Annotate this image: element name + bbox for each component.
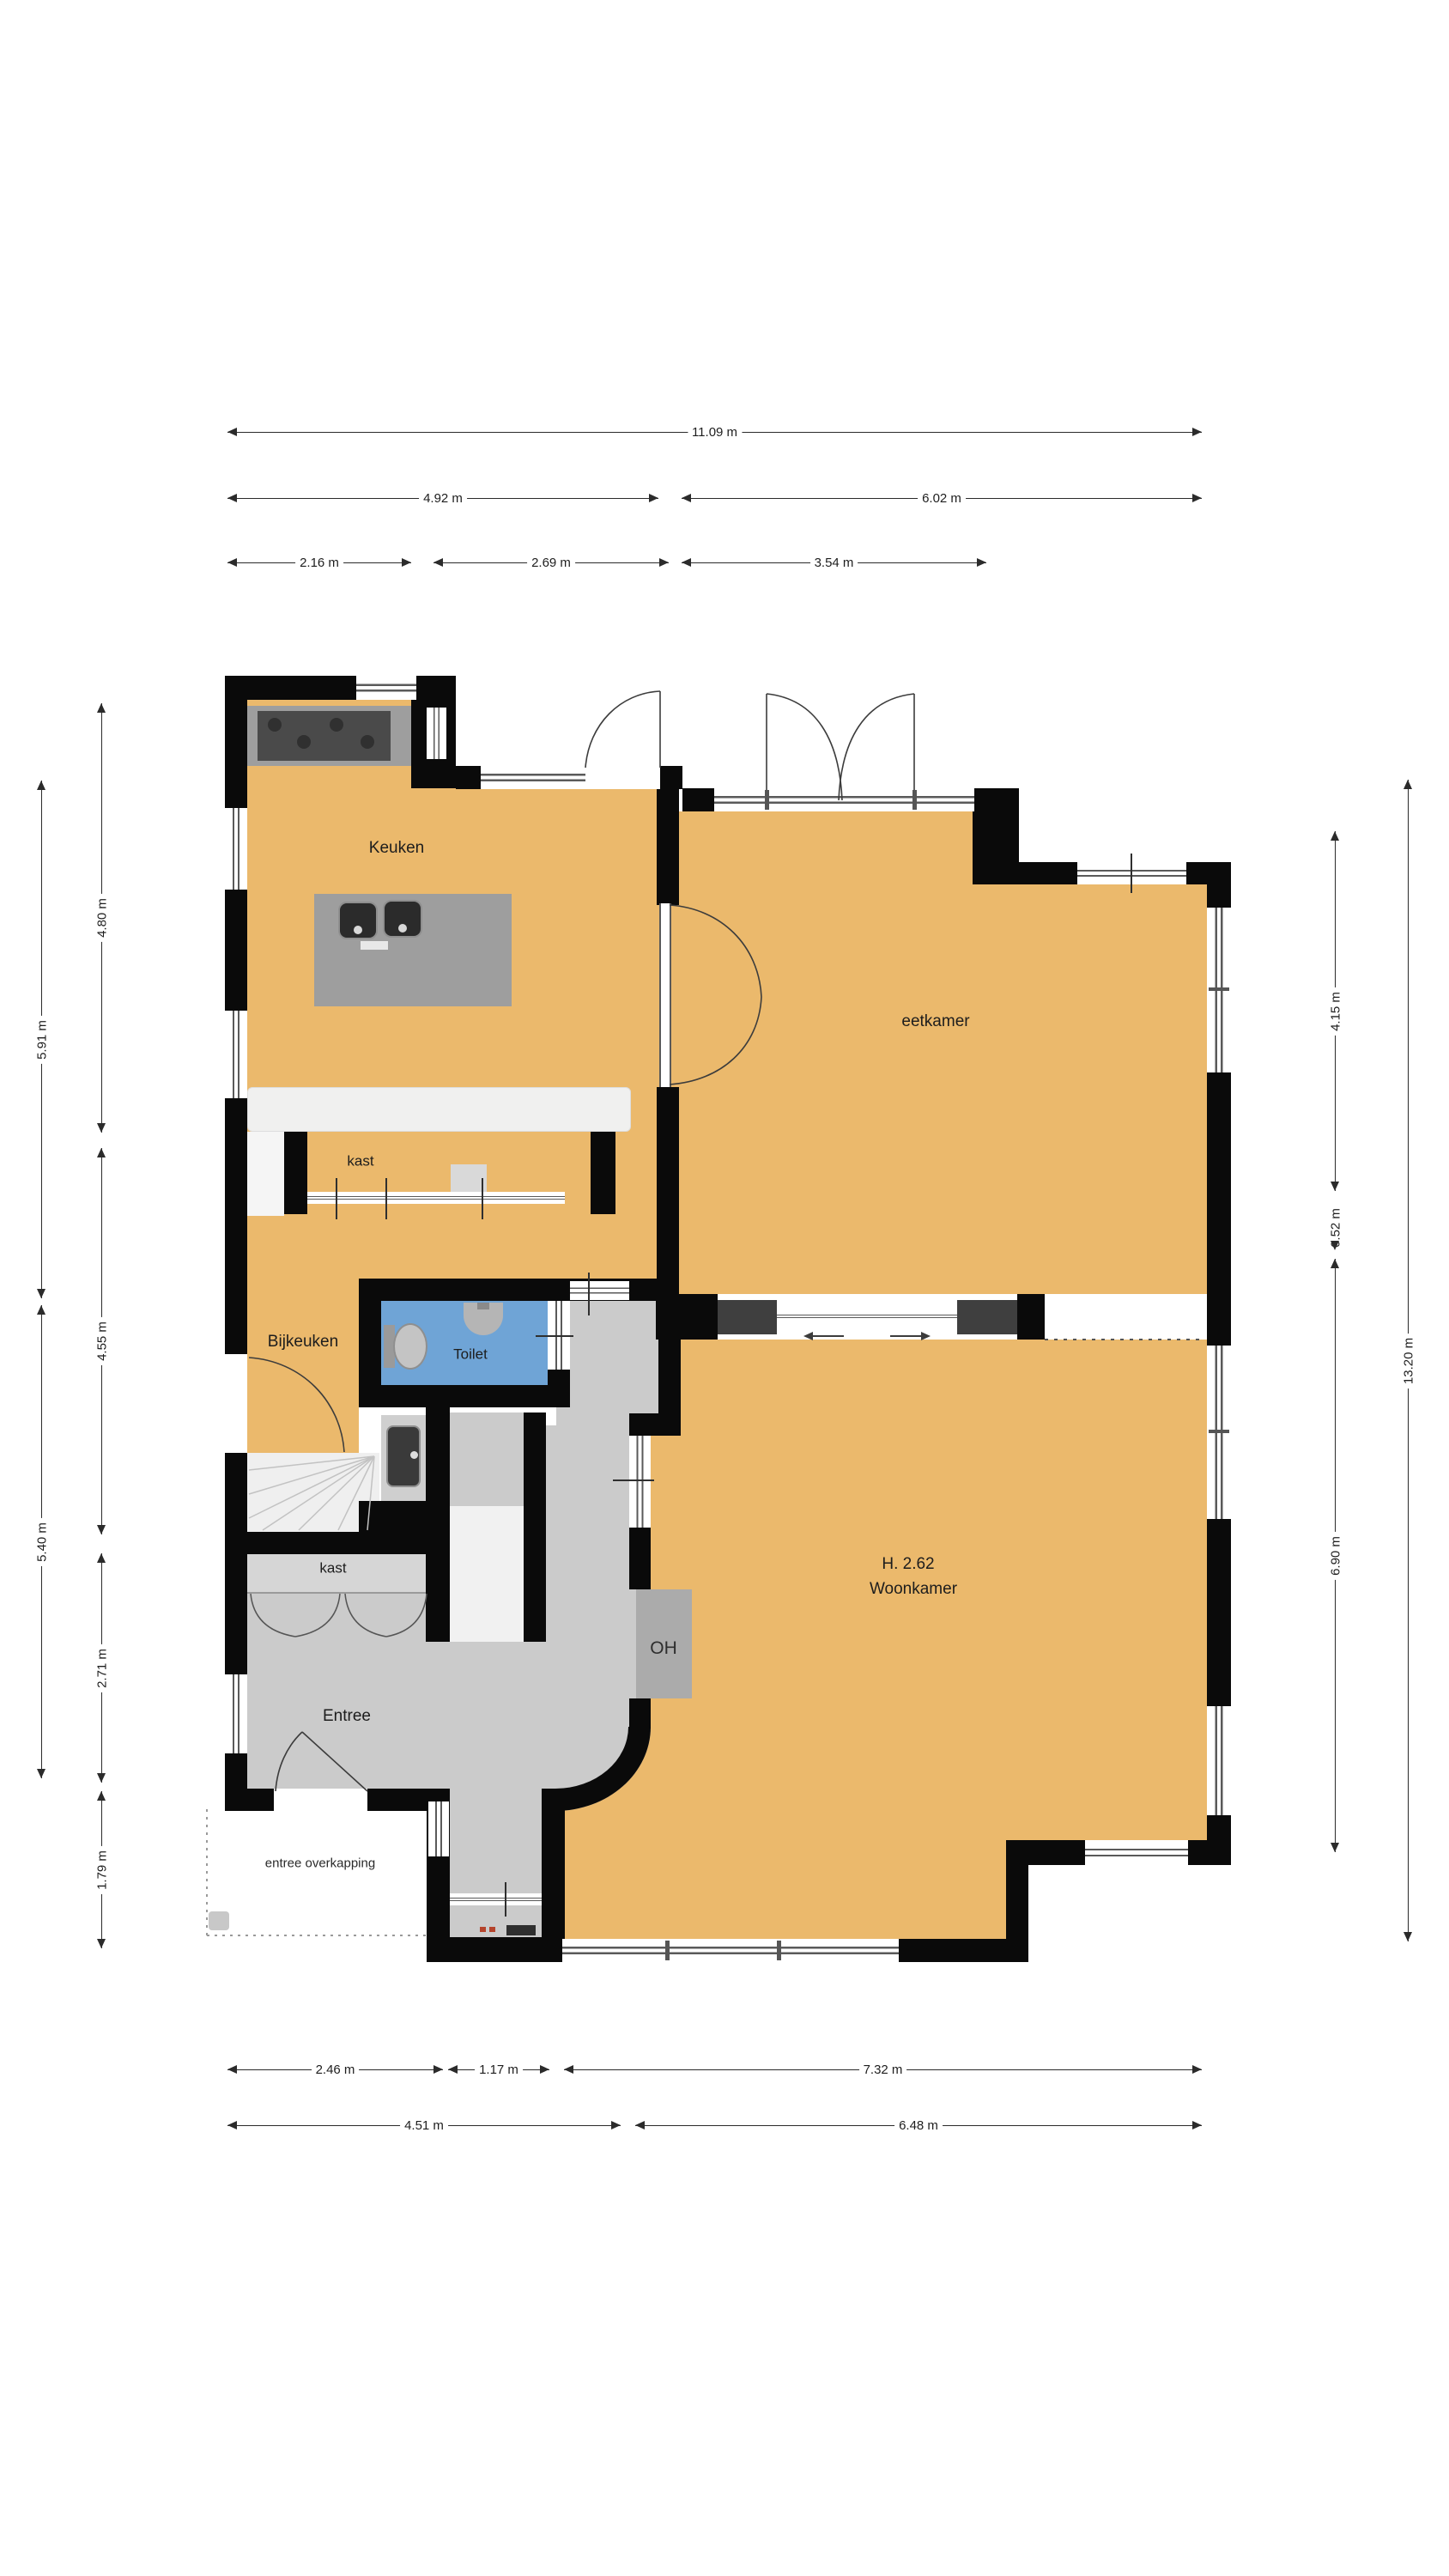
floor-eetkamer-2: [1019, 884, 1207, 1294]
wall: [359, 1385, 570, 1407]
wall: [284, 1132, 307, 1214]
room-label-kast-bottom: kast: [319, 1558, 346, 1577]
window: [1085, 1840, 1188, 1865]
wall: [629, 1698, 651, 1728]
door-opening-front: [274, 1789, 367, 1811]
mat-dot-1: [480, 1927, 486, 1932]
door-glazed-partition: [659, 903, 671, 1087]
utility-faucet: [410, 1451, 418, 1459]
window: [428, 1801, 449, 1856]
floorplan-canvas: Keuken eetkamer kast Bijkeuken Toilet ka…: [0, 0, 1449, 2576]
wall: [656, 1294, 718, 1340]
door-opening: [585, 766, 660, 789]
dim-top-seg1: 2.16 m: [227, 562, 411, 563]
doormat: [506, 1925, 536, 1935]
window: [427, 708, 446, 759]
window: [562, 1939, 899, 1962]
room-label-entree: Entree: [323, 1706, 371, 1727]
room-label-entree-overkapping: entree overkapping: [265, 1856, 375, 1873]
room-label-eetkamer: eetkamer: [901, 1012, 969, 1032]
wall: [524, 1413, 546, 1642]
island-faucet-left: [354, 926, 362, 934]
porch-post: [209, 1911, 229, 1930]
wall: [591, 1132, 615, 1214]
mullion: [1209, 1430, 1229, 1433]
pocket-door-left: [718, 1300, 777, 1334]
window-french-doors: [714, 788, 974, 811]
wall: [657, 788, 679, 905]
dim-total-height: 13.20 m: [1408, 780, 1409, 1941]
room-label-keuken: Keuken: [369, 838, 424, 859]
stairs-straight: [450, 1506, 524, 1642]
mat-dot-2: [489, 1927, 495, 1932]
dim-bottom-seg1: 2.46 m: [227, 2069, 443, 2070]
pocket-door-right: [957, 1300, 1017, 1334]
vestibule: [450, 1789, 542, 1895]
dim-bottom-left-total: 4.51 m: [227, 2125, 621, 2126]
dim-left-seg2: 4.55 m: [101, 1148, 102, 1534]
room-label-bijkeuken: Bijkeuken: [268, 1332, 338, 1352]
door-porch: [450, 1893, 542, 1905]
mullion: [765, 790, 769, 810]
wall: [973, 788, 1019, 884]
sliding-door-rail: [777, 1310, 957, 1322]
toilet-sink-faucet: [477, 1303, 489, 1309]
door-kast-sliding: [307, 1192, 565, 1204]
dim-bottom-seg2: 1.17 m: [448, 2069, 549, 2070]
dim-left-upper: 5.91 m: [41, 781, 42, 1298]
room-label-toilet: Toilet: [453, 1345, 488, 1363]
mullion: [912, 790, 917, 810]
kitchen-cabinets: [247, 1087, 631, 1132]
floor-eetkamer: [679, 811, 1019, 1294]
window: [481, 766, 585, 789]
dim-top-seg3: 3.54 m: [682, 562, 986, 563]
window: [1207, 1706, 1231, 1815]
burner-3: [330, 718, 343, 732]
mullion: [665, 1941, 670, 1960]
island-faucet-right: [398, 924, 407, 933]
island-handle: [361, 941, 388, 950]
window: [225, 1674, 247, 1753]
window: [1077, 862, 1186, 884]
dim-left-lower: 5.40 m: [41, 1305, 42, 1778]
dim-right-wall: 0.52 m: [1335, 1205, 1336, 1250]
hall-upper: [556, 1301, 658, 1425]
dim-bottom-seg3: 7.32 m: [564, 2069, 1202, 2070]
dim-right-woonkamer: 6.90 m: [1335, 1259, 1336, 1852]
window: [225, 808, 247, 890]
dim-left-seg3: 2.71 m: [101, 1553, 102, 1783]
wall: [629, 1413, 681, 1436]
room-label-ceiling-height: H. 2.62: [882, 1554, 934, 1575]
wall: [629, 1528, 651, 1589]
dim-right-eetkamer: 4.15 m: [1335, 831, 1336, 1191]
cabinet-block: [247, 1132, 284, 1216]
mullion: [777, 1941, 781, 1960]
wall: [542, 1789, 565, 1960]
mullion: [1209, 987, 1229, 991]
wall: [657, 1087, 679, 1299]
window: [356, 676, 416, 700]
wall: [1017, 1294, 1045, 1340]
door-opening: [225, 1354, 247, 1453]
burner-2: [297, 735, 311, 749]
window-partition: [570, 1281, 629, 1300]
room-label-kast-top: kast: [347, 1151, 373, 1170]
dim-top-left: 4.92 m: [227, 498, 658, 499]
door-toilet: [548, 1301, 570, 1370]
dim-left-seg1: 4.80 m: [101, 703, 102, 1133]
dim-top-seg2: 2.69 m: [433, 562, 669, 563]
room-label-oh-fireplace: OH: [650, 1637, 677, 1660]
window: [225, 1011, 247, 1098]
dim-left-seg4: 1.79 m: [101, 1791, 102, 1948]
dim-total-width: 11.09 m: [227, 432, 1202, 433]
toilet-bowl: [393, 1323, 427, 1370]
wall: [225, 1532, 431, 1554]
canopy-dashed-outline: [207, 1809, 426, 1935]
wall: [359, 1501, 431, 1532]
dim-top-right: 6.02 m: [682, 498, 1202, 499]
burner-4: [361, 735, 374, 749]
stair-landing: [450, 1413, 524, 1506]
dim-bottom-right-total: 6.48 m: [635, 2125, 1202, 2126]
floor-bijkeuken-2: [247, 1192, 359, 1453]
room-label-woonkamer: Woonkamer: [870, 1579, 957, 1600]
burner-1: [268, 718, 282, 732]
window-interior: [629, 1436, 651, 1528]
